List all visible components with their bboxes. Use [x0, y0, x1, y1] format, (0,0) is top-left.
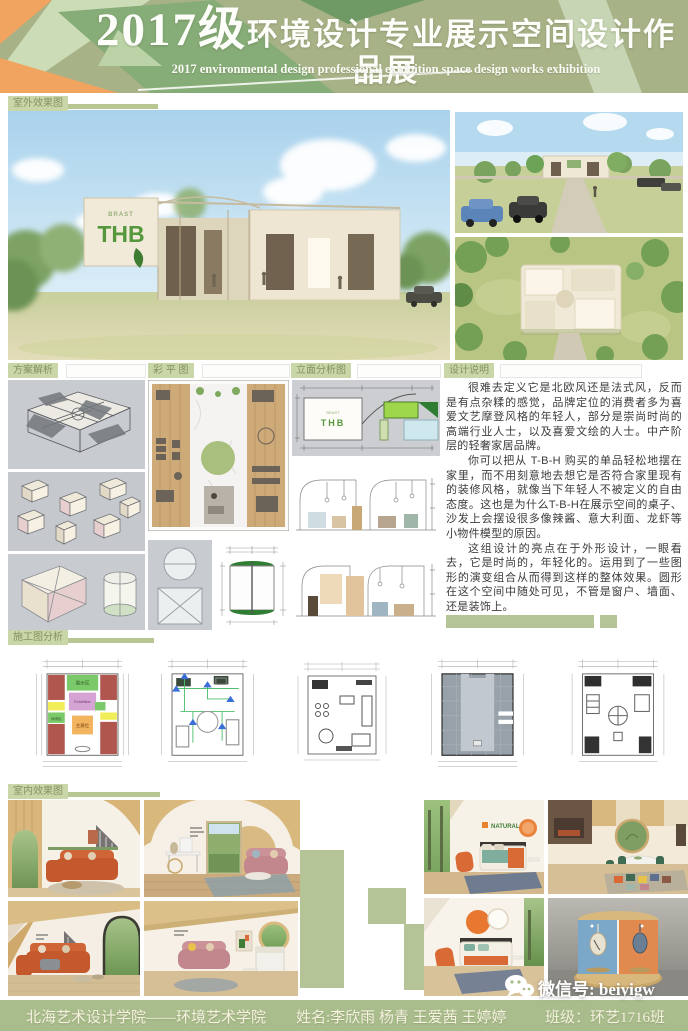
scheme-wireframe-axon	[8, 380, 145, 469]
collage-filler-3	[404, 924, 424, 990]
section-label-construction: 施工图分析	[8, 630, 68, 645]
scheme-exploded-modules	[8, 472, 145, 551]
construction-plan-furniture-1	[292, 651, 392, 776]
elevation-front-colored: BRAST THB	[292, 380, 440, 456]
exterior-render-road	[455, 112, 683, 233]
section-label-scheme: 方案解析	[8, 363, 58, 378]
section-label-elevation: 立面分析图	[291, 363, 351, 378]
construction-plan-zoning: 展示区 休闲区 Exhibition 主展位	[30, 653, 135, 773]
construction-plan-ceiling	[425, 653, 530, 773]
title-year: 2017级	[96, 4, 247, 56]
elevation-sign-thb: THB	[321, 418, 346, 428]
wall-brand-text: NATURAL	[491, 824, 520, 830]
construction-plan-circuit	[150, 653, 265, 773]
description-label-strip	[500, 364, 642, 378]
cylinder-booth-drawing	[216, 540, 289, 630]
color-plan-label-strip	[202, 364, 290, 378]
elevation-section-2	[292, 548, 440, 630]
section-label-color-plan: 彩 平 图	[148, 363, 194, 378]
zone-label-exhibition: Exhibition	[74, 700, 90, 704]
description-paragraph-1: 很难去定义它是北欧风还是法式风，反而是有点杂糅的感觉，品牌定位的消费者多为喜爱文…	[446, 381, 682, 454]
shape-diagram-circle-square	[148, 540, 212, 630]
interior-render-orange-sofa-2	[8, 901, 140, 996]
exterior-render-main: BRAST THB	[8, 110, 450, 360]
scheme-label-strip	[66, 364, 146, 378]
building-sign-small: BRAST	[108, 212, 134, 218]
building-sign-main: THB	[97, 221, 144, 247]
zone-label-main-booth: 主展位	[76, 722, 90, 729]
description-decor-square	[600, 615, 617, 628]
elevation-sign-small: BRAST	[326, 410, 340, 415]
footer-class-value: 环艺1716班	[590, 1010, 665, 1026]
footer-names-value: 李欣雨 杨青 王爱茜 王婷婷	[330, 1010, 506, 1026]
footer-class-label: 班级：	[545, 1010, 590, 1026]
collage-filler-1	[300, 850, 344, 988]
description-paragraph-2: 你可以把从 T-B-H 购买的单品轻松地摆在家里，而不用刻意地去想它是否符合家里…	[446, 454, 682, 542]
section-label-description: 设计说明	[444, 363, 494, 378]
section-label-interior: 室内效果图	[8, 784, 68, 799]
wechat-icon	[504, 974, 534, 1000]
footer-names: 姓名:李欣雨 杨青 王爱茜 王婷婷	[296, 1006, 506, 1027]
zone-label-leisure: 休闲区	[51, 716, 62, 721]
interior-render-bedroom-natural: NATURAL	[424, 800, 544, 894]
page-subtitle-en: 2017 environmental design professional e…	[90, 62, 682, 77]
aerial-building	[521, 265, 621, 335]
title-chinese: 环境设计专业展示空间设计作品展	[247, 17, 676, 88]
footer-school: 北海艺术设计学院——环境艺术学院	[26, 1006, 266, 1027]
elevation-section-1	[292, 460, 440, 544]
description-paragraph-3: 这组设计的亮点在于外形设计，一眼看去，它是时尚的，年轻化的。运用到了一些图形的演…	[446, 542, 682, 615]
footer-class: 班级：环艺1716班	[545, 1006, 665, 1027]
collage-filler-2	[368, 888, 406, 924]
exhibition-poster: 2017级环境设计专业展示空间设计作品展 2017 environmental …	[0, 0, 688, 1031]
exterior-render-aerial	[455, 237, 683, 360]
elevation-label-strip	[357, 364, 441, 378]
interior-render-orange-sofa-1	[8, 800, 140, 897]
color-floor-plan	[148, 380, 289, 531]
design-description-text: 很难去定义它是北欧风还是法式风，反而是有点杂糅的感觉，品牌定位的消费者多为喜爱文…	[446, 381, 682, 615]
scheme-cube-cylinder	[8, 554, 145, 630]
description-decor-bar	[446, 615, 594, 628]
interior-render-pink-sofa-piano	[144, 901, 298, 996]
wechat-id-text: 微信号: beiyigw	[538, 975, 655, 1000]
interior-render-pink-sofa-desk	[144, 800, 300, 897]
footer-names-label: 姓名:	[296, 1010, 330, 1026]
construction-plan-furniture-2	[562, 653, 674, 773]
interior-render-dining	[548, 800, 688, 894]
section-label-exterior: 室外效果图	[8, 96, 68, 111]
